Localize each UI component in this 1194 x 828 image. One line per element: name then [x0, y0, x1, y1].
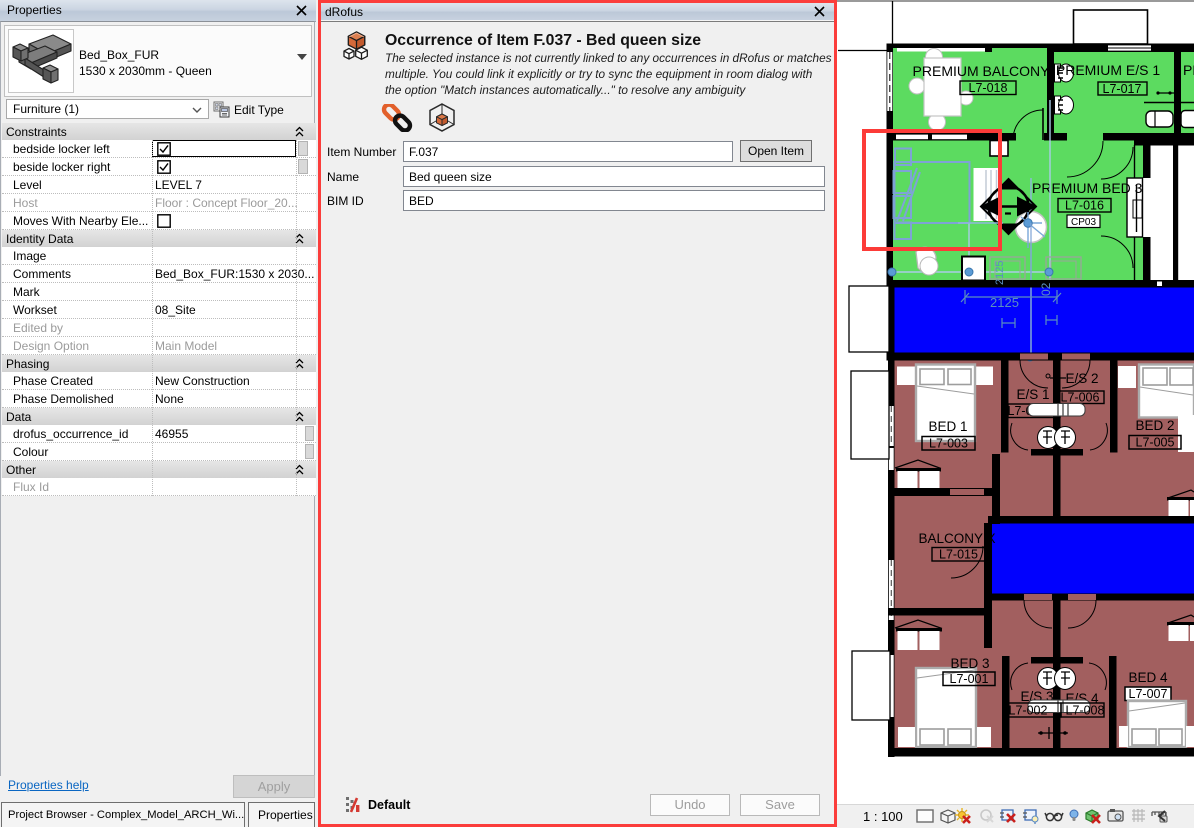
svg-text:L7-018: L7-018: [969, 81, 1008, 95]
svg-text:E/S 2: E/S 2: [1065, 371, 1098, 386]
svg-text:L7-006: L7-006: [1061, 391, 1100, 405]
svg-text:L7-017: L7-017: [1103, 82, 1142, 96]
svg-text:PREMIUM BALCONY: PREMIUM BALCONY: [913, 63, 1051, 79]
svg-text:L7-016: L7-016: [1065, 199, 1104, 213]
svg-text:L7-008: L7-008: [1066, 704, 1105, 718]
svg-text:BED 3: BED 3: [950, 656, 989, 671]
svg-text:CP03: CP03: [1071, 217, 1096, 228]
svg-text:PR: PR: [1183, 62, 1194, 78]
svg-text:BED 4: BED 4: [1128, 670, 1168, 685]
svg-text:L7-007: L7-007: [1129, 687, 1168, 701]
svg-text:L7-001: L7-001: [950, 672, 989, 686]
svg-text:BED 1: BED 1: [928, 419, 967, 434]
svg-text:L7-002: L7-002: [1009, 704, 1048, 718]
svg-text:BALCONY X: BALCONY X: [918, 531, 995, 546]
svg-text:L7-015: L7-015: [939, 548, 978, 562]
svg-text:2125: 2125: [994, 261, 1006, 285]
svg-text:BED 2: BED 2: [1135, 418, 1174, 433]
svg-text:02: 02: [1039, 282, 1053, 296]
svg-text:2125: 2125: [990, 295, 1019, 310]
svg-text:PREMIUM BED 3: PREMIUM BED 3: [1032, 180, 1143, 196]
svg-text:E/S 1: E/S 1: [1016, 387, 1049, 402]
svg-text:L7-005: L7-005: [1136, 436, 1175, 450]
svg-text:PREMIUM E/S 1: PREMIUM E/S 1: [1056, 62, 1160, 78]
svg-text:L7-003: L7-003: [929, 437, 968, 451]
